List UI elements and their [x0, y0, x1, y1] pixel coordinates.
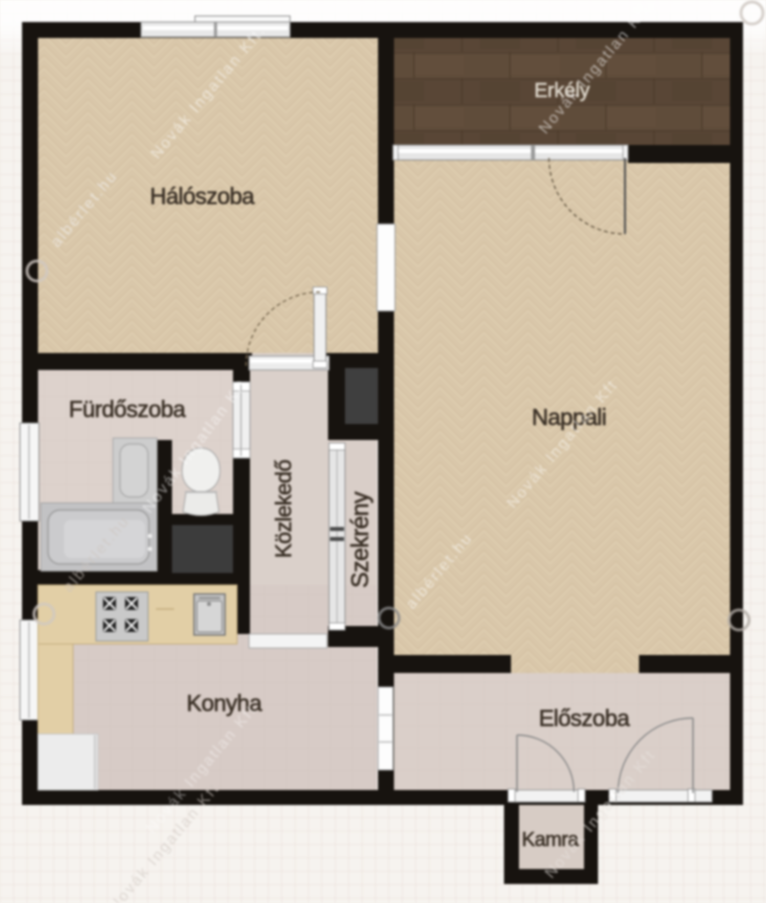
svg-text:Közlekedő: Közlekedő: [271, 460, 296, 559]
svg-text:Szekrény: Szekrény: [347, 491, 374, 588]
svg-text:Fürdőszoba: Fürdőszoba: [69, 396, 186, 422]
svg-text:Hálószoba: Hálószoba: [150, 183, 255, 209]
svg-text:Előszoba: Előszoba: [539, 705, 630, 731]
